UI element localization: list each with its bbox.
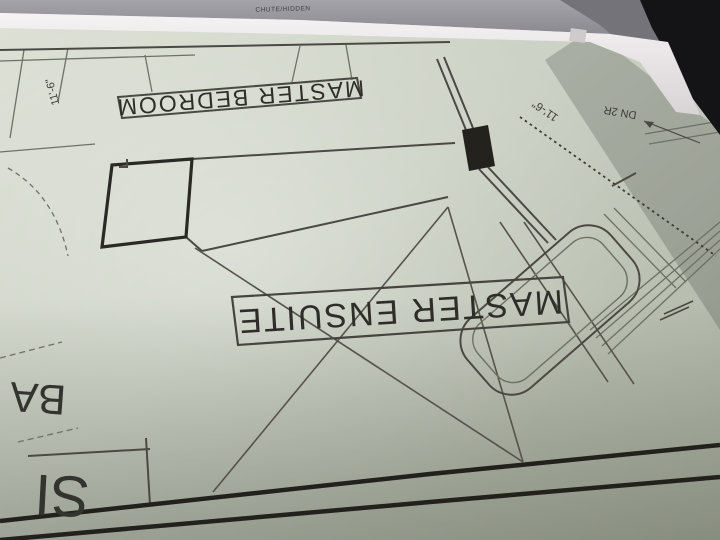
partial-room-label-ba: BA [8,373,67,424]
plan-canvas: MASTER BEDROOM MASTER ENSUITE 11'-6" 11'… [0,0,720,540]
floor-plan-photo: MASTER BEDROOM MASTER ENSUITE 11'-6" 11'… [0,0,720,540]
chute-hidden-note: CHUTE/HIDDEN [255,5,310,13]
paper-edge-highlight-chip [569,28,587,43]
partial-room-label-si: SI [33,462,91,530]
